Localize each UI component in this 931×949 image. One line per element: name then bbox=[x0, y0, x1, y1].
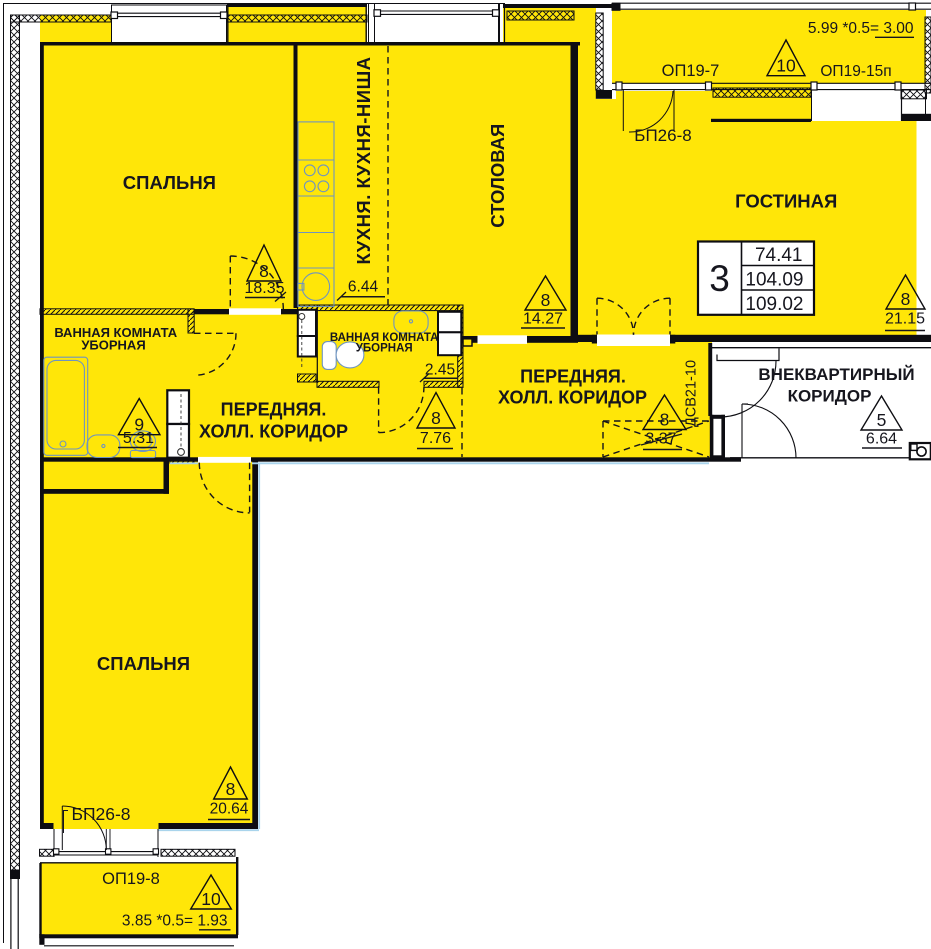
svg-text:ХОЛЛ. КОРИДОР: ХОЛЛ. КОРИДОР bbox=[498, 388, 647, 408]
svg-text:ОП19-15п: ОП19-15п bbox=[820, 63, 891, 80]
svg-text:СПАЛЬНЯ: СПАЛЬНЯ bbox=[97, 653, 190, 674]
svg-text:5: 5 bbox=[877, 410, 887, 430]
svg-text:2.45: 2.45 bbox=[425, 362, 455, 379]
svg-text:БП26-8: БП26-8 bbox=[71, 804, 130, 824]
svg-text:ДСВ21-10: ДСВ21-10 bbox=[684, 360, 700, 427]
svg-text:БП26-8: БП26-8 bbox=[634, 126, 691, 145]
svg-text:8: 8 bbox=[226, 779, 236, 799]
svg-text:7.76: 7.76 bbox=[420, 430, 451, 447]
svg-text:ОП19-7: ОП19-7 bbox=[662, 62, 720, 80]
svg-text:КОРИДОР: КОРИДОР bbox=[788, 387, 872, 406]
svg-text:6.64: 6.64 bbox=[866, 431, 897, 448]
svg-text:8: 8 bbox=[901, 289, 911, 309]
svg-text:10: 10 bbox=[776, 56, 796, 76]
svg-text:8: 8 bbox=[259, 261, 269, 281]
svg-text:8: 8 bbox=[541, 290, 551, 310]
svg-text:8: 8 bbox=[431, 408, 441, 428]
svg-text:КУХНЯ. КУХНЯ-НИША: КУХНЯ. КУХНЯ-НИША bbox=[353, 56, 374, 264]
svg-text:20.64: 20.64 bbox=[210, 801, 249, 818]
svg-text:18.35: 18.35 bbox=[244, 280, 284, 297]
svg-text:5.31: 5.31 bbox=[123, 430, 154, 447]
svg-text:ПЕРЕДНЯЯ.: ПЕРЕДНЯЯ. bbox=[221, 400, 327, 420]
svg-text:21.15: 21.15 bbox=[885, 311, 925, 328]
svg-text:ПЕРЕДНЯЯ.: ПЕРЕДНЯЯ. bbox=[520, 367, 626, 387]
svg-text:14.27: 14.27 bbox=[523, 311, 563, 328]
svg-text:СТОЛОВАЯ: СТОЛОВАЯ bbox=[487, 124, 508, 228]
svg-text:5.99 *0.5= 3.00: 5.99 *0.5= 3.00 bbox=[808, 20, 914, 37]
svg-text:3.85 *0.5= 1.93: 3.85 *0.5= 1.93 bbox=[122, 913, 228, 930]
svg-text:6.44: 6.44 bbox=[348, 279, 379, 296]
svg-text:104.09: 104.09 bbox=[745, 270, 803, 291]
svg-text:3: 3 bbox=[709, 258, 730, 299]
svg-text:ОП19-8: ОП19-8 bbox=[102, 870, 160, 888]
svg-text:ГОСТИНАЯ: ГОСТИНАЯ bbox=[735, 191, 837, 212]
svg-text:109.02: 109.02 bbox=[745, 294, 803, 315]
svg-text:74.41: 74.41 bbox=[755, 245, 803, 266]
svg-text:ВНЕКВАРТИРНЫЙ: ВНЕКВАРТИРНЫЙ bbox=[758, 365, 914, 384]
svg-text:СПАЛЬНЯ: СПАЛЬНЯ bbox=[123, 172, 216, 193]
svg-text:УБОРНАЯ: УБОРНАЯ bbox=[81, 338, 145, 353]
svg-text:8: 8 bbox=[660, 410, 670, 430]
svg-text:10: 10 bbox=[201, 889, 221, 909]
svg-text:ХОЛЛ. КОРИДОР: ХОЛЛ. КОРИДОР bbox=[199, 422, 348, 442]
svg-text:УБОРНАЯ: УБОРНАЯ bbox=[356, 342, 413, 354]
